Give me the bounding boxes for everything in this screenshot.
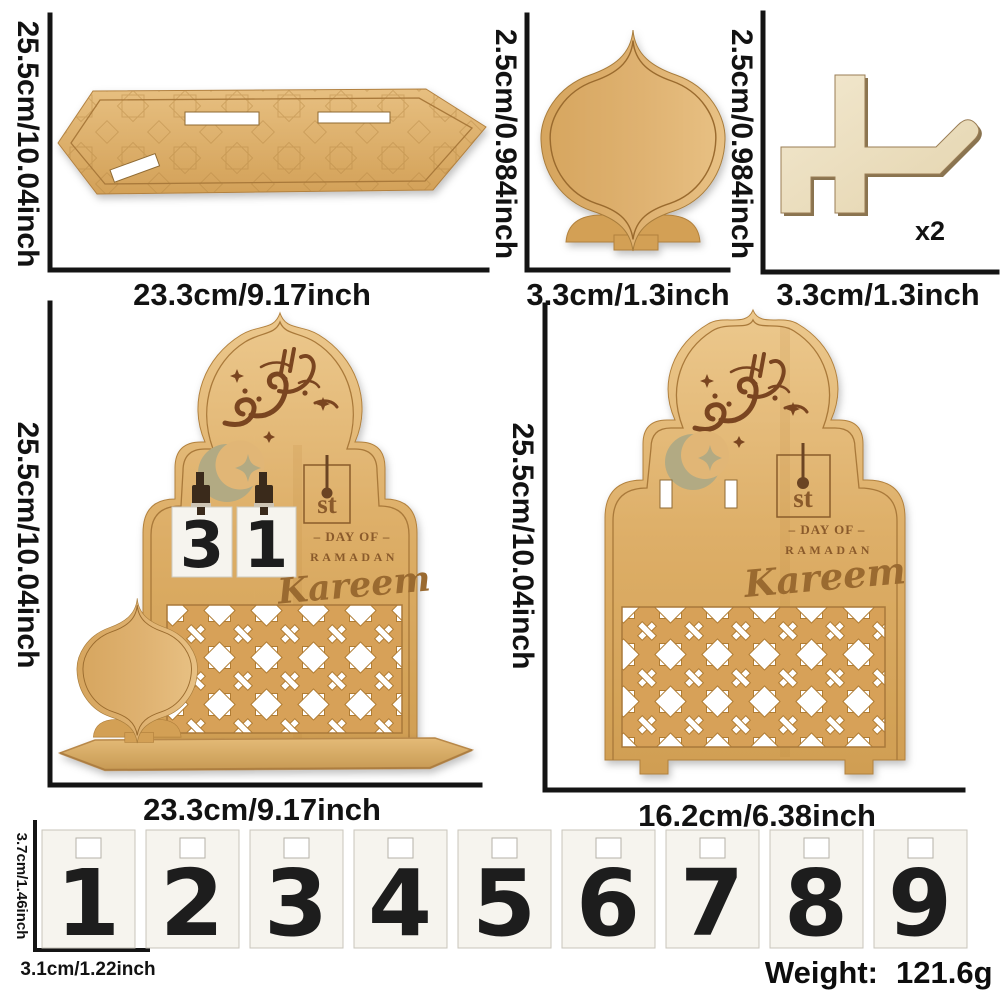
number-card-5: 5 <box>458 830 551 957</box>
calendar-front-height-label: 25.5cm/10.04inch <box>11 422 44 669</box>
diagram-svg: 25.5cm/10.04inch 23.3cm/9.17inch 2.5cm/0… <box>0 0 1000 1000</box>
calendar-back-width-label: 16.2cm/6.38inch <box>638 798 876 833</box>
hook-height-label: 2.5cm/0.984inch <box>725 29 758 259</box>
clip-slot-1 <box>660 480 672 508</box>
suffix-engraving: st <box>317 489 337 519</box>
lattice-panel-back <box>622 607 885 747</box>
base-plank-slot-2 <box>318 112 390 123</box>
base-plank-slot-1 <box>185 112 259 125</box>
calendar-back-photo: st – DAY OF – RAMADAN Kareem <box>605 310 907 774</box>
number-card-1: 1 <box>42 830 135 957</box>
base-plank-section: 25.5cm/10.04inch 23.3cm/9.17inch <box>11 15 487 312</box>
number-card-digit: 5 <box>472 850 536 957</box>
number-card-digit: 1 <box>56 850 120 957</box>
weight-value: 121.6g <box>896 955 993 990</box>
number-card-4: 4 <box>354 830 447 957</box>
number-card-7: 7 <box>666 830 759 957</box>
calendar-front-section: 25.5cm/10.04inch 23.3cm/9.17inch <box>11 303 480 827</box>
number-card-2: 2 <box>146 830 239 957</box>
weight-label: Weight: <box>765 955 878 990</box>
day-card-tens-number: 3 <box>180 509 225 583</box>
lantern-piece-photo <box>541 30 725 251</box>
number-card-digit: 2 <box>160 850 224 957</box>
suffix-engraving-back: st <box>793 483 813 513</box>
calendar-back-section: 25.5cm/10.04inch 16.2cm/6.38inch st <box>506 305 963 833</box>
base-plank-photo <box>58 89 486 194</box>
lantern-piece-section: 2.5cm/0.984inch 3.3cm/1.3inch <box>489 15 730 312</box>
lantern-width-label: 3.3cm/1.3inch <box>526 277 729 312</box>
day-card-tens: 3 <box>172 507 232 583</box>
hook-piece-shape <box>781 75 979 213</box>
calendar-back-height-label: 25.5cm/10.04inch <box>506 423 539 670</box>
number-card-8: 8 <box>770 830 863 957</box>
hook-width-label: 3.3cm/1.3inch <box>776 277 979 312</box>
day-of-engraving: – DAY OF – <box>313 529 391 544</box>
platform-base <box>60 738 472 770</box>
number-cards-width-label: 3.1cm/1.22inch <box>20 959 155 980</box>
base-plank-height-label: 25.5cm/10.04inch <box>11 21 44 268</box>
weight-label-group: Weight: 121.6g <box>765 955 993 990</box>
lattice-panel <box>167 605 402 733</box>
hook-quantity-label: x2 <box>915 216 945 246</box>
hook-piece-photo <box>781 75 982 216</box>
hook-piece-section: 2.5cm/0.984inch 3.3cm/1.3inch x2 <box>725 13 997 312</box>
product-dimension-diagram: 25.5cm/10.04inch 23.3cm/9.17inch 2.5cm/0… <box>0 0 1000 1000</box>
number-card-3: 3 <box>250 830 343 957</box>
number-card-digit: 4 <box>368 850 432 957</box>
lantern-height-label: 2.5cm/0.984inch <box>489 29 522 259</box>
base-plank-width-label: 23.3cm/9.17inch <box>133 277 371 312</box>
number-card-digit: 8 <box>784 850 848 957</box>
number-card-digit: 7 <box>680 850 744 957</box>
number-card-digit: 3 <box>264 850 328 957</box>
number-cards-height-label: 3.7cm/1.46inch <box>13 833 30 940</box>
number-card-digit: 6 <box>576 850 640 957</box>
number-card-digit: 9 <box>888 850 952 957</box>
calendar-front-width-label: 23.3cm/9.17inch <box>143 792 381 827</box>
clip-slot-2 <box>725 480 737 508</box>
calendar-front-photo: 3 1 st – DAY OF – RAMADAN Kareem <box>60 313 472 770</box>
number-card-9: 9 <box>874 830 967 957</box>
day-of-engraving-back: – DAY OF – <box>788 522 866 537</box>
number-card-6: 6 <box>562 830 655 957</box>
